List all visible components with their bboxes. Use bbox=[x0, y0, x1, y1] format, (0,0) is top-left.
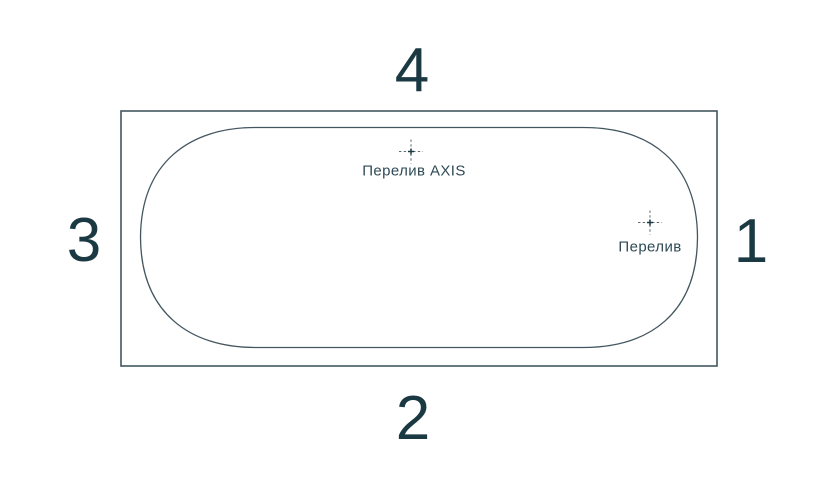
tub-inner-basin bbox=[141, 128, 698, 348]
bathtub-top-view-diagram: 4 1 2 3 Перелив AXIS Перелив bbox=[0, 0, 828, 480]
overflow-label: Перелив bbox=[618, 239, 681, 256]
side-number-bottom: 2 bbox=[396, 388, 430, 450]
side-number-left: 3 bbox=[67, 210, 101, 272]
overflow-center-mark-icon bbox=[638, 211, 662, 235]
overflow-axis-center-mark-icon bbox=[399, 140, 423, 164]
side-number-top: 4 bbox=[395, 40, 429, 102]
overflow-axis-label: Перелив AXIS bbox=[362, 163, 466, 180]
side-number-right: 1 bbox=[734, 211, 768, 273]
